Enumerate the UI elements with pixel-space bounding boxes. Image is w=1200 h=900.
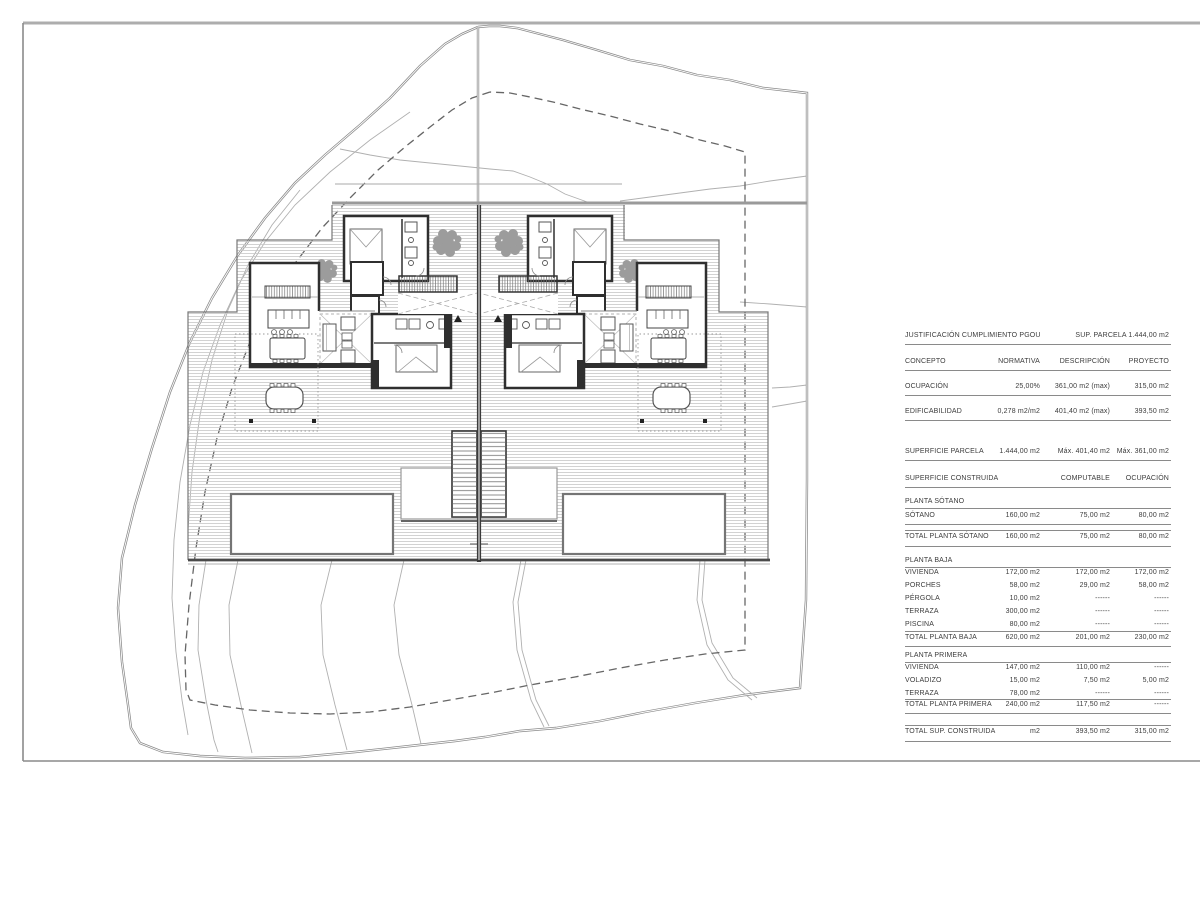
table-row: VIVIENDA 172,00 m2 172,00 m2 172,00 m2 (905, 567, 1171, 580)
table-header-row: CONCEPTO NORMATIVA DESCRIPCIÓN PROYECTO (905, 356, 1171, 371)
table-row: OCUPACIÓN 25,00% 361,00 m2 (max) 315,00 … (905, 381, 1171, 396)
table-row: PORCHES 58,00 m2 29,00 m2 58,00 m2 (905, 580, 1171, 593)
swimming-pool-left (231, 494, 393, 554)
table-row: PÉRGOLA 10,00 m2 ------ ------ (905, 593, 1171, 606)
table-grand-total-row: TOTAL SUP. CONSTRUIDA m2 393,50 m2 315,0… (905, 725, 1171, 742)
drawing-sheet: JUSTIFICACIÓN CUMPLIMIENTO PGOU SUP. PAR… (0, 0, 1200, 900)
table-total-row: TOTAL PLANTA PRIMERA 240,00 m2 117,50 m2… (905, 699, 1171, 714)
col-header: PROYECTO (1129, 358, 1169, 365)
table-row: SUPERFICIE CONSTRUIDA COMPUTABLE OCUPACI… (905, 473, 1171, 488)
col-header: DESCRIPCIÓN (1060, 358, 1110, 365)
table-row: EDIFICABILIDAD 0,278 m2/m2 401,40 m2 (ma… (905, 406, 1171, 421)
col-header: NORMATIVA (998, 358, 1040, 365)
col-header: CONCEPTO (905, 358, 946, 365)
swimming-pool-right (563, 494, 725, 554)
table-title: JUSTIFICACIÓN CUMPLIMIENTO PGOU (905, 332, 1041, 339)
table-row: SÓTANO 160,00 m2 75,00 m2 80,00 m2 (905, 510, 1171, 525)
table-row: VIVIENDA 147,00 m2 110,00 m2 ------ (905, 662, 1171, 675)
table-row: PISCINA 80,00 m2 ------ ------ (905, 619, 1171, 632)
table-total-row: TOTAL PLANTA SÓTANO 160,00 m2 75,00 m2 8… (905, 530, 1171, 547)
parcel-area-value: SUP. PARCELA 1.444,00 m2 (1075, 332, 1169, 339)
table-title-row: JUSTIFICACIÓN CUMPLIMIENTO PGOU SUP. PAR… (905, 330, 1171, 345)
table-total-row: TOTAL PLANTA BAJA 620,00 m2 201,00 m2 23… (905, 632, 1171, 647)
pgou-compliance-table: JUSTIFICACIÓN CUMPLIMIENTO PGOU SUP. PAR… (905, 329, 1171, 759)
table-row: SUPERFICIE PARCELA 1.444,00 m2 Máx. 401,… (905, 446, 1171, 461)
table-row: VOLADIZO 15,00 m2 7,50 m2 5,00 m2 (905, 675, 1171, 688)
table-section-row: PLANTA SÓTANO (905, 496, 1171, 509)
table-row: TERRAZA 300,00 m2 ------ ------ (905, 606, 1171, 619)
